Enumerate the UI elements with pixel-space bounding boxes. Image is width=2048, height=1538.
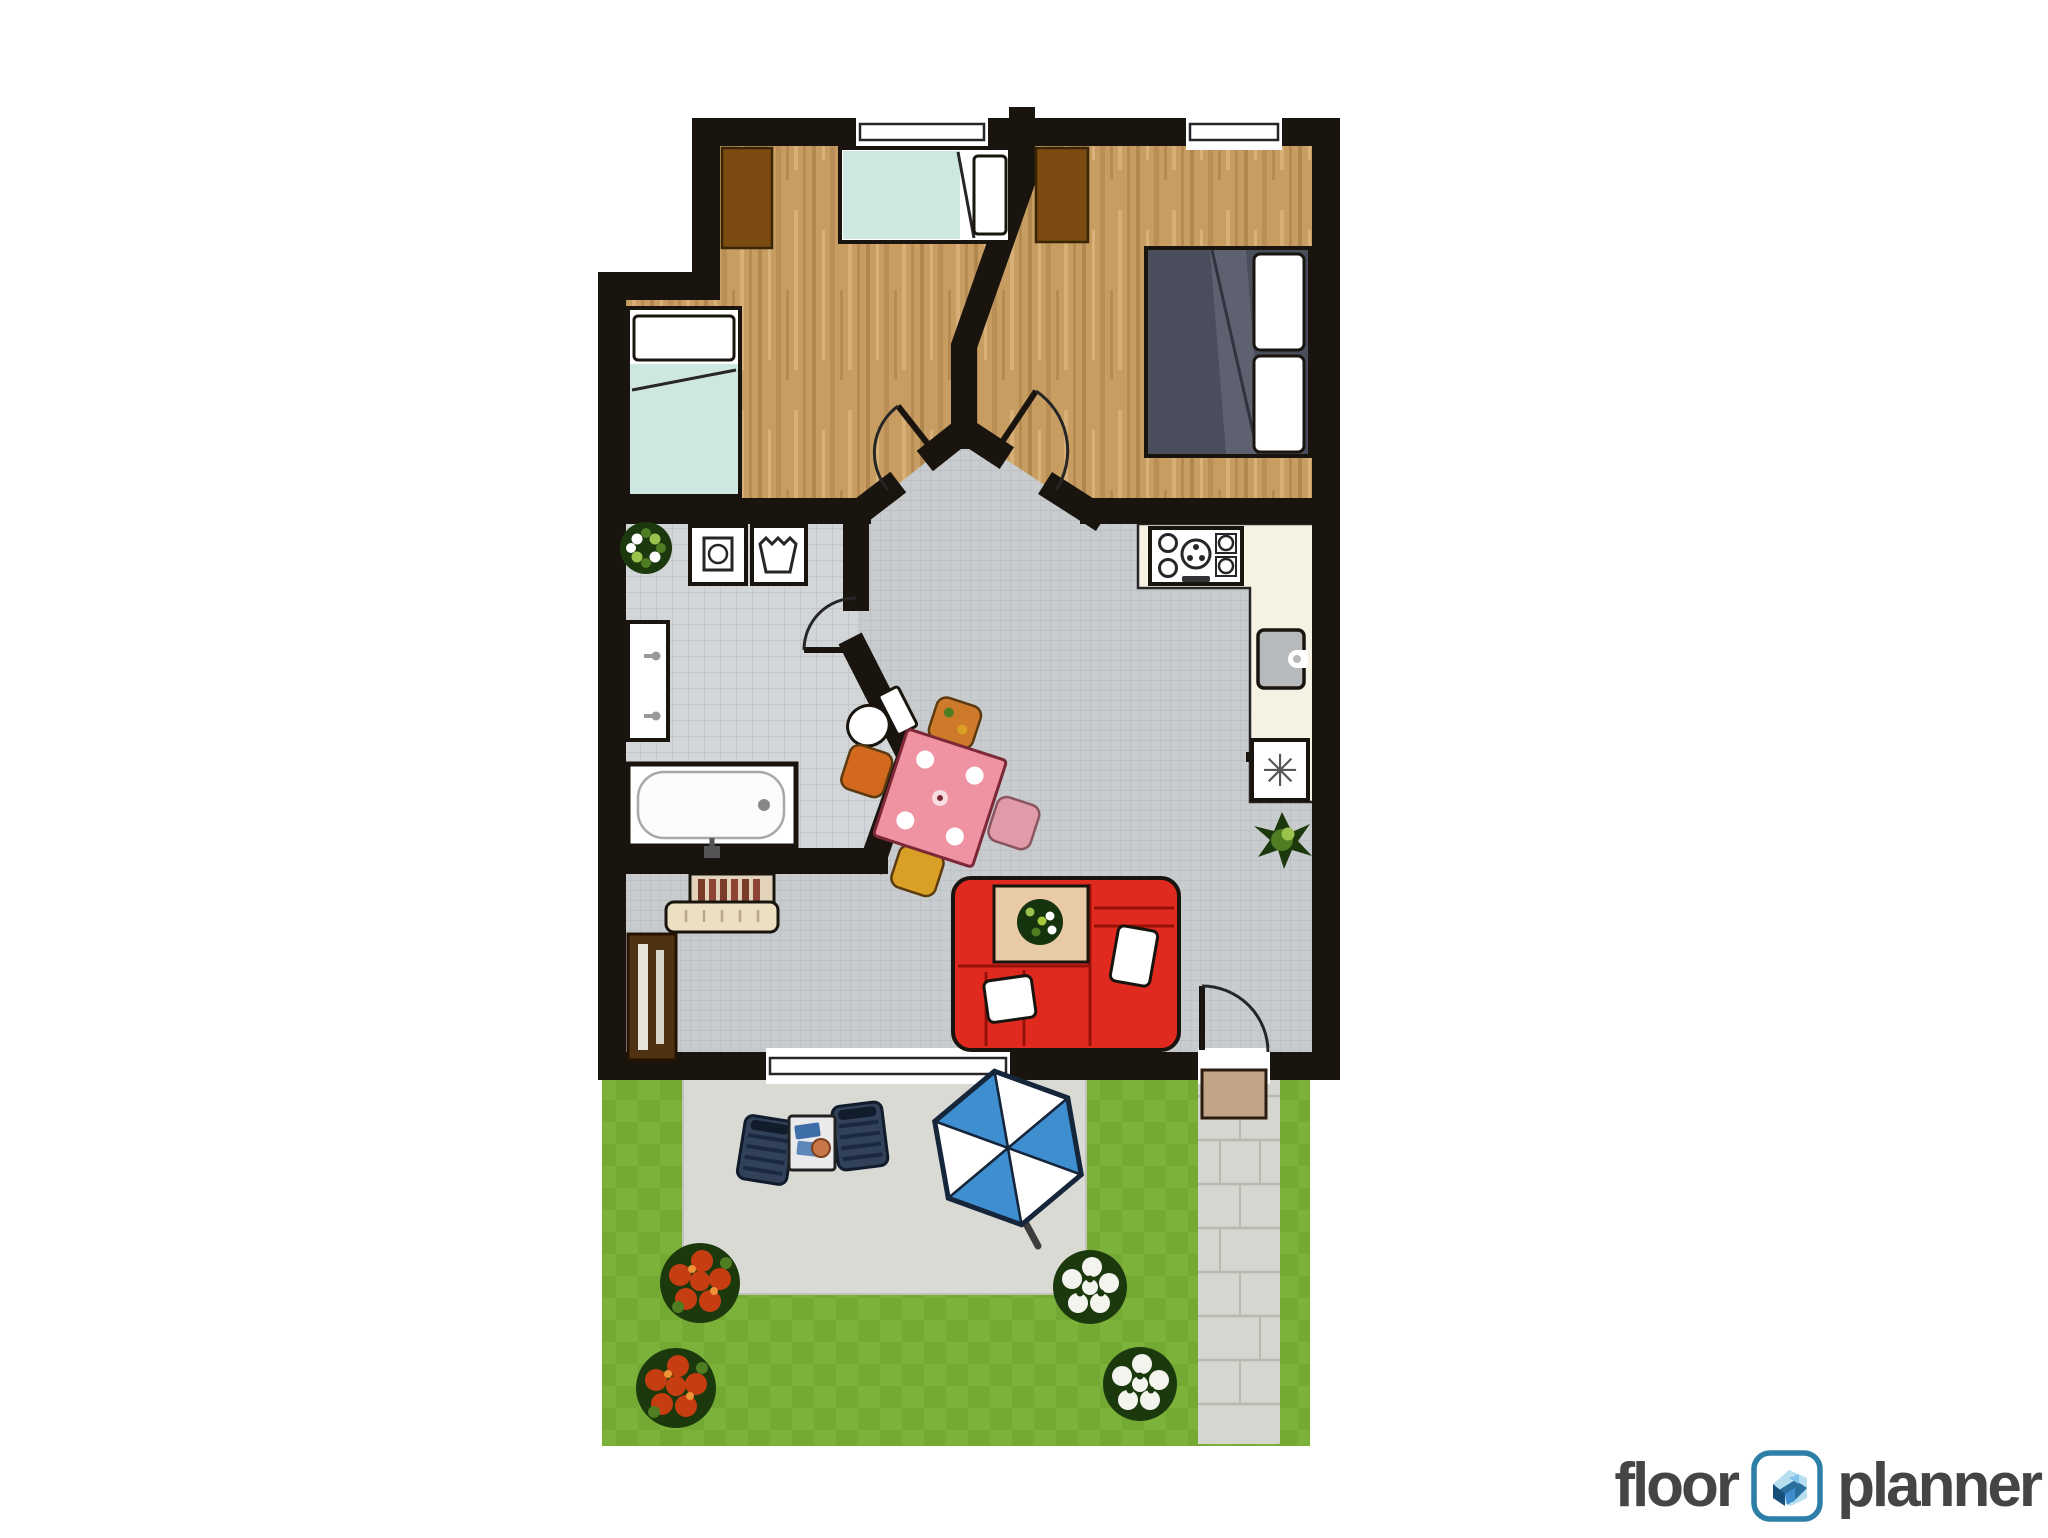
wall-left — [598, 272, 626, 1080]
tap — [1293, 655, 1301, 663]
washing-machine — [690, 526, 746, 584]
bathtub — [628, 764, 796, 858]
building-step-cutout — [560, 100, 692, 276]
lounge-chair — [736, 1114, 795, 1185]
floorplanner-house-icon — [1749, 1448, 1825, 1524]
wall-step — [598, 272, 720, 300]
floorplanner-canvas: ✳ — [0, 0, 2048, 1538]
sofa-pillow — [983, 975, 1036, 1023]
pillow — [1254, 254, 1304, 350]
corner-sofa — [953, 878, 1179, 1050]
flower-bush-orange — [636, 1348, 716, 1428]
bookshelf — [628, 934, 676, 1060]
doormat — [1202, 1070, 1266, 1118]
floor-plan: ✳ — [0, 0, 2048, 1538]
double-bed — [1146, 248, 1310, 456]
flower-bush-white — [1103, 1347, 1177, 1421]
pillow — [634, 316, 734, 360]
wall-right — [1312, 118, 1340, 1080]
floorplanner-logo: floor planner — [1614, 1448, 2040, 1524]
wall-diagonal-right-a — [964, 430, 996, 451]
faucet — [704, 846, 720, 858]
single-bed-top — [840, 148, 1010, 242]
freezer-symbol: ✳ — [1262, 746, 1299, 797]
single-bed-left — [628, 308, 740, 496]
pillow — [974, 156, 1006, 234]
wall-bathroom-bottom — [598, 848, 888, 874]
laundry-basket — [752, 526, 806, 584]
logo-text-floor: floor — [1614, 1455, 1737, 1517]
window-bedroom-right — [1186, 114, 1282, 150]
coffee-table-plant — [1017, 899, 1063, 945]
garden-path — [1198, 1066, 1280, 1444]
sofa-pillow — [1109, 925, 1158, 987]
wardrobe — [722, 148, 772, 248]
kitchen-sink — [1258, 630, 1308, 688]
sink-vanity — [628, 622, 668, 740]
wall-kitchen-top — [1080, 498, 1340, 524]
flower-bush-white — [1053, 1250, 1127, 1324]
flower-bush-orange — [660, 1243, 740, 1323]
logo-text-planner: planner — [1837, 1455, 2040, 1517]
drain — [758, 799, 770, 811]
wall-bedroom-left-bottom — [598, 498, 871, 524]
garden-side-table — [789, 1116, 835, 1170]
freezer: ✳ — [1246, 740, 1308, 800]
wardrobe — [1036, 148, 1088, 242]
lounge-chair — [831, 1101, 888, 1171]
stove — [1150, 528, 1242, 584]
potted-plant-bathroom — [620, 522, 672, 574]
window-living-room — [766, 1048, 1010, 1084]
pillow — [1254, 356, 1304, 452]
window-bedroom-left — [856, 114, 988, 150]
